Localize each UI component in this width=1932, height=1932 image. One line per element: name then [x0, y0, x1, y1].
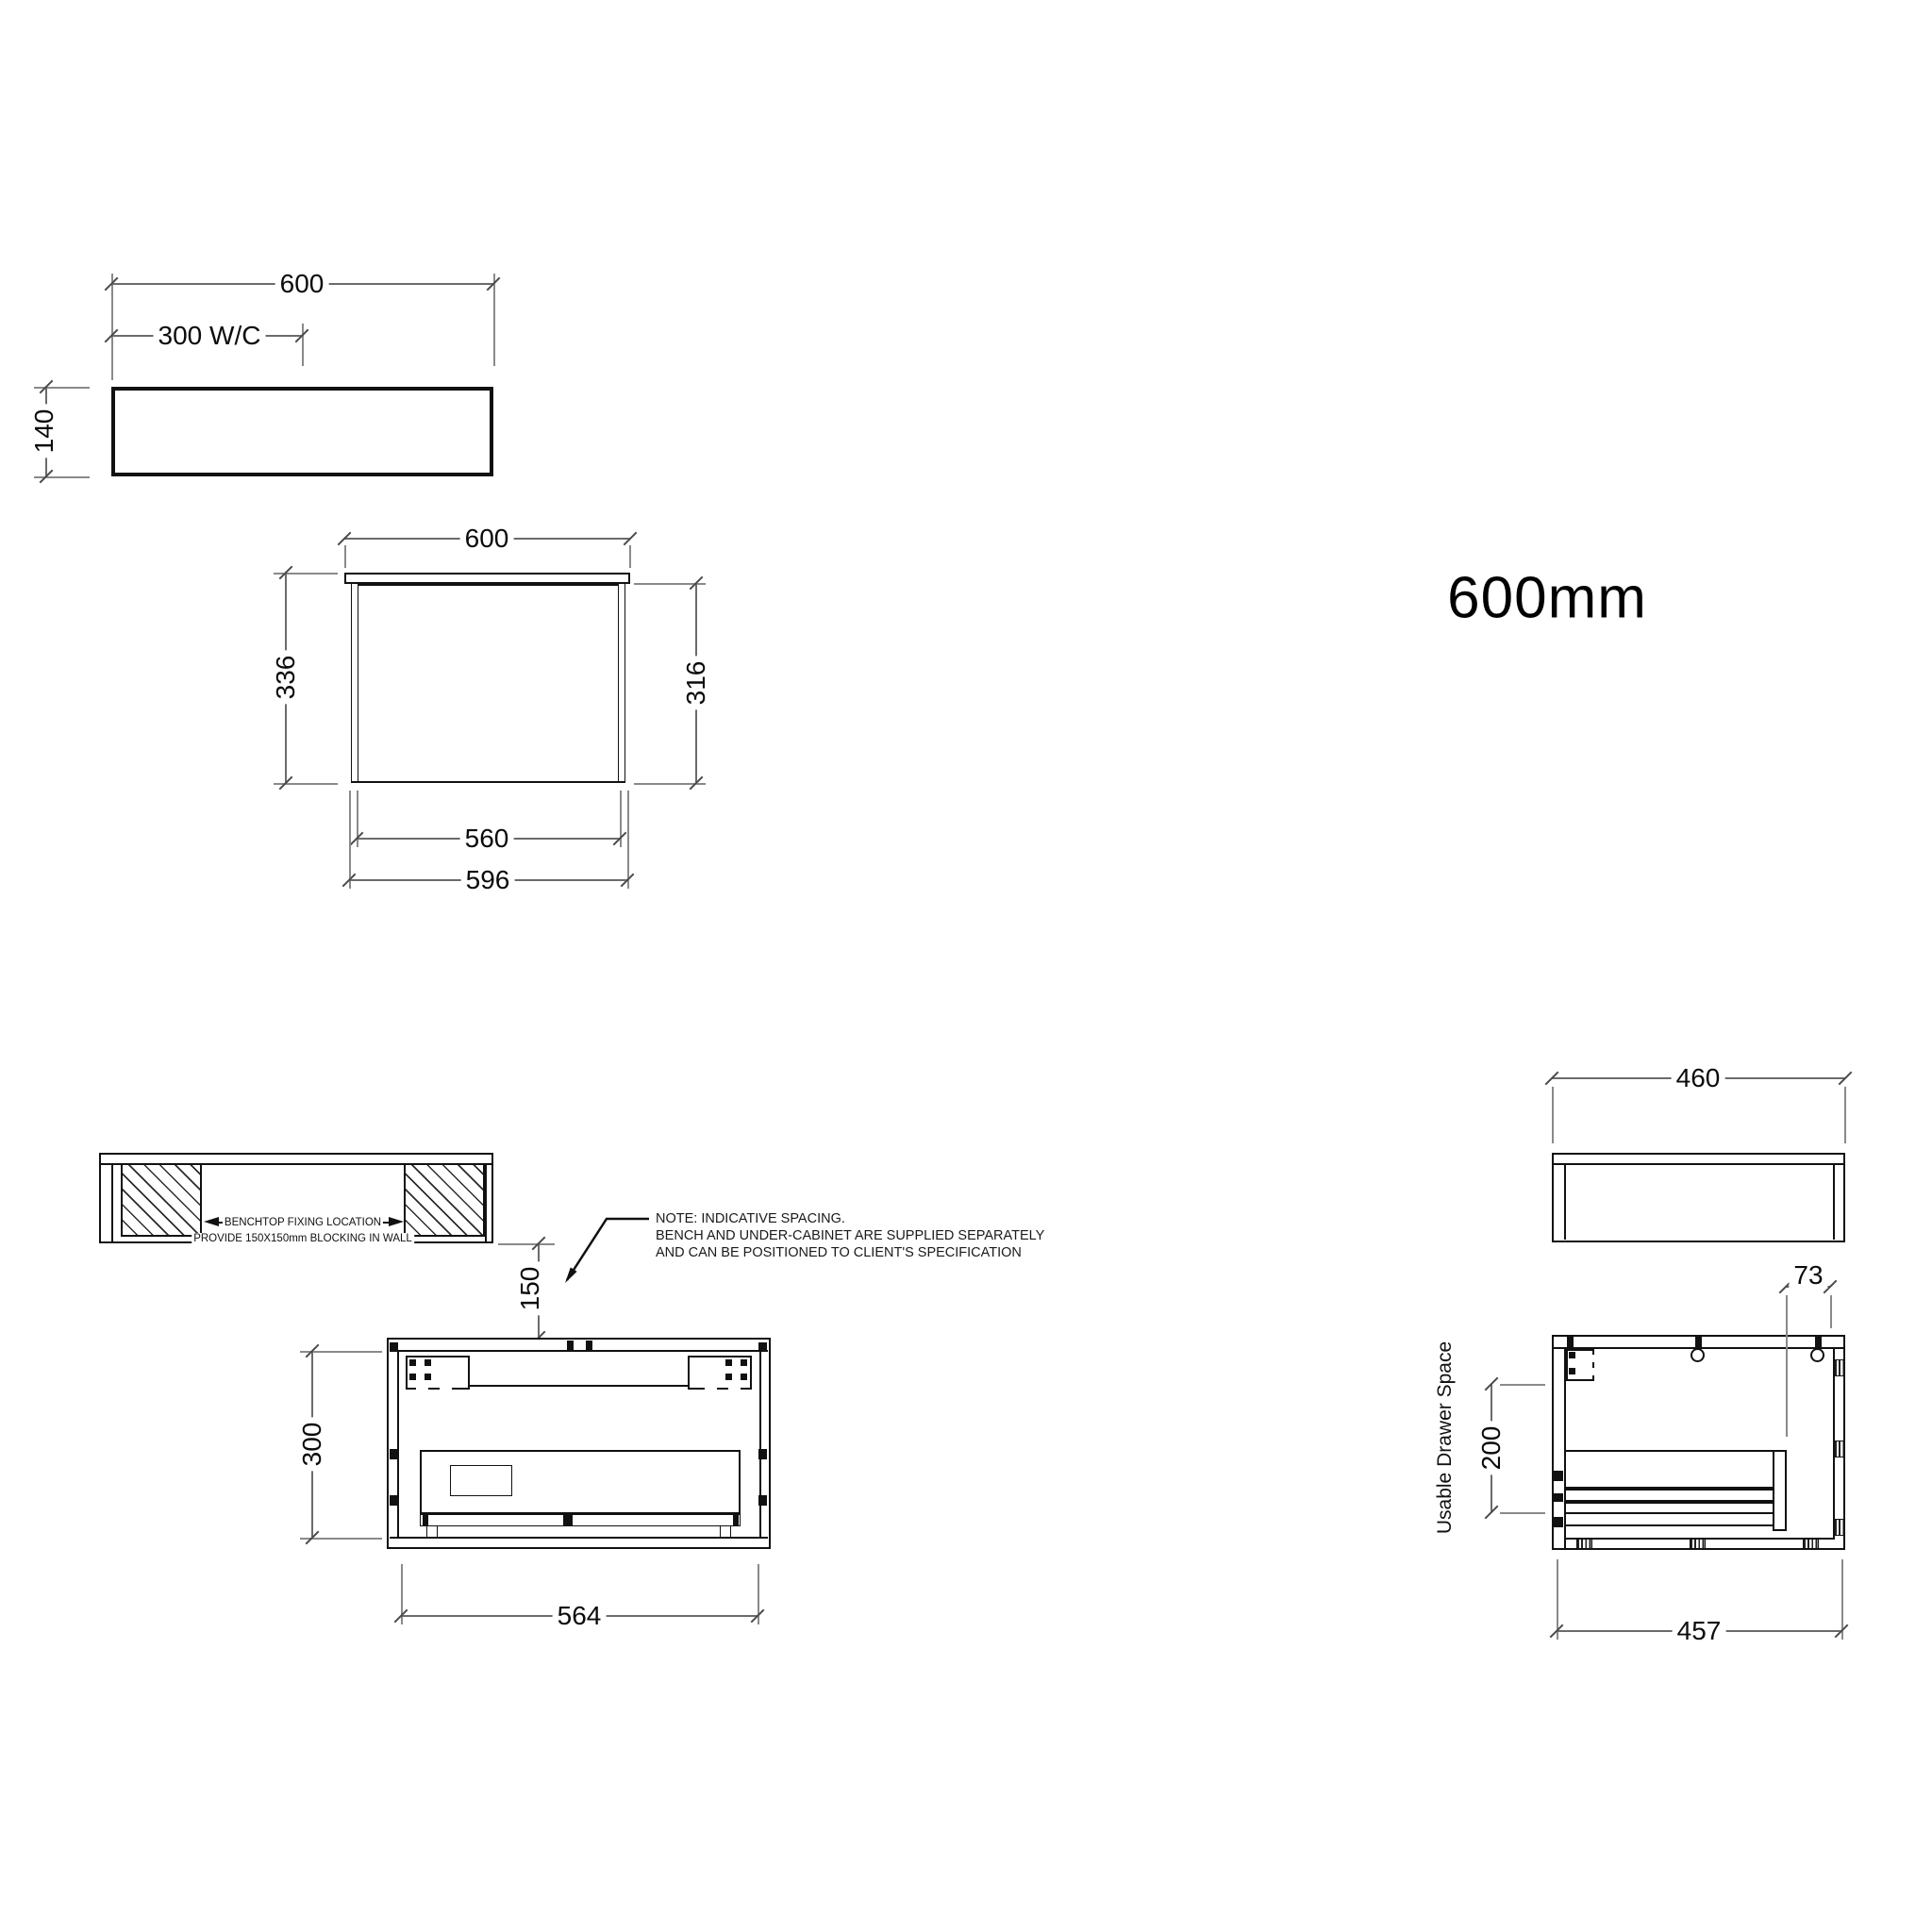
dim-wc-offset: 300 W/C — [154, 323, 266, 349]
blocking-hatch-right — [404, 1163, 485, 1237]
blocking-hatch-left — [121, 1163, 202, 1237]
dim-height-overall: 336 — [273, 651, 299, 705]
bracket-notch — [440, 1381, 452, 1392]
usable-drawer-space-label: Usable Drawer Space — [1434, 1341, 1457, 1534]
rail-clip — [733, 1515, 739, 1525]
bracket-clip — [1569, 1368, 1575, 1374]
extension-line — [1552, 1087, 1554, 1143]
side-fixing-tab — [1567, 1337, 1574, 1347]
extension-line — [1830, 1295, 1832, 1328]
runner-block — [390, 1449, 398, 1459]
dim-spacing-gap: 150 — [517, 1262, 543, 1316]
bracket-clip — [725, 1374, 732, 1380]
drawer-runner-rail — [1564, 1487, 1786, 1491]
bracket-notch — [416, 1381, 428, 1392]
bracket-clip — [409, 1374, 416, 1380]
runner-block — [1553, 1471, 1563, 1481]
drawer-back-cutout — [450, 1465, 512, 1496]
drawer-back-panel-side — [1773, 1450, 1787, 1531]
wall-rail-fixing — [1834, 1519, 1844, 1536]
extension-line — [627, 791, 629, 889]
benchtop-side-outline — [1552, 1153, 1845, 1242]
benchtop-side-edge — [1833, 1164, 1835, 1240]
note-line2: BENCH AND UNDER-CABINET ARE SUPPLIED SEP… — [656, 1227, 1044, 1244]
dim-inner-width: 560 — [460, 825, 514, 852]
drawer-front-rail-plan — [420, 1514, 741, 1526]
plan-fixing-tab — [586, 1341, 592, 1350]
benchtop-side-edge — [1564, 1164, 1566, 1240]
rail-clip — [423, 1515, 428, 1525]
bracket-clip — [1569, 1352, 1575, 1358]
blocking-label-line1: BENCHTOP FIXING LOCATION — [223, 1217, 383, 1228]
arrow-right-icon — [389, 1217, 404, 1226]
rail-foot — [720, 1525, 731, 1538]
plan-rail-line — [470, 1385, 688, 1387]
plan-right-inner-line — [759, 1350, 761, 1538]
dim-outer-width: 596 — [461, 867, 515, 893]
drawer-runner-rail — [1564, 1500, 1786, 1504]
plan-bottom-inner-line — [390, 1537, 768, 1539]
extension-line — [111, 274, 113, 380]
runner-block — [390, 1495, 398, 1506]
rail-clip — [563, 1515, 573, 1525]
note-line3: AND CAN BE POSITIONED TO CLIENT'S SPECIF… — [656, 1244, 1022, 1261]
dim-plan-depth: 300 — [299, 1418, 325, 1472]
runner-block — [1553, 1493, 1563, 1502]
extension-line — [349, 791, 351, 889]
extension-line — [1500, 1384, 1545, 1386]
benchtop-front-outline — [344, 573, 630, 584]
dim-benchtop-depth: 460 — [1672, 1065, 1725, 1091]
base-fixing — [1803, 1539, 1819, 1549]
runner-block — [758, 1342, 767, 1350]
dim-height-cabinet: 316 — [683, 657, 709, 710]
extension-line — [629, 545, 631, 568]
cabinet-top-line — [358, 584, 618, 586]
bracket-clip — [425, 1374, 431, 1380]
rail-foot — [426, 1525, 438, 1538]
cabinet-right-panel — [618, 583, 625, 783]
bracket-notch — [728, 1381, 741, 1392]
bracket-clip — [741, 1374, 747, 1380]
dim-benchtop-width: 600 — [275, 271, 329, 297]
side-fixing-tab — [1695, 1337, 1702, 1347]
cabinet-bottom-line — [351, 781, 625, 783]
runner-block — [758, 1449, 767, 1459]
runner-block — [1553, 1517, 1563, 1527]
note-line1: NOTE: INDICATIVE SPACING. — [656, 1210, 845, 1227]
runner-block — [390, 1342, 398, 1350]
extension-line — [493, 274, 495, 366]
extension-line — [302, 324, 304, 366]
base-fixing — [1576, 1539, 1592, 1549]
benchtop-side-top-band — [1554, 1163, 1843, 1165]
bracket-clip — [725, 1359, 732, 1366]
fixing-hole — [1810, 1348, 1824, 1362]
base-fixing — [1690, 1539, 1706, 1549]
technical-drawing-canvas: 600 300 W/C 140 600 336 316 560 596 600m… — [0, 0, 1932, 1932]
wall-section-inner-line — [485, 1164, 487, 1241]
bracket-clip — [425, 1359, 431, 1366]
dim-plan-width: 564 — [553, 1603, 607, 1629]
bracket-notch — [1588, 1368, 1596, 1375]
dim-elevation-width: 600 — [460, 525, 514, 552]
cabinet-left-panel — [351, 583, 358, 783]
blocking-label-line2: PROVIDE 150X150mm BLOCKING IN WALL — [192, 1233, 414, 1244]
benchtop-plan-outline — [111, 387, 493, 476]
plan-left-inner-line — [397, 1350, 399, 1538]
size-title-label: 600mm — [1447, 565, 1647, 632]
extension-line — [498, 1243, 555, 1245]
plan-top-inner-line — [390, 1350, 768, 1352]
dim-side-depth: 457 — [1673, 1618, 1726, 1644]
extension-line — [344, 545, 346, 568]
dim-back-gap: 73 — [1789, 1262, 1827, 1289]
extension-line — [1844, 1087, 1846, 1143]
bracket-clip — [741, 1359, 747, 1366]
dim-drawer-height: 200 — [1478, 1422, 1505, 1475]
fixing-hole — [1690, 1348, 1705, 1362]
bracket-notch — [705, 1381, 717, 1392]
bracket-notch — [1588, 1355, 1596, 1362]
extension-line — [1786, 1295, 1788, 1437]
dim-benchtop-thickness: 140 — [31, 405, 58, 458]
bracket-clip — [409, 1359, 416, 1366]
runner-block — [758, 1495, 767, 1506]
drawer-base-line — [1564, 1512, 1786, 1514]
wall-rail-fixing — [1834, 1359, 1844, 1376]
wall-rail-fixing — [1834, 1441, 1844, 1457]
plan-fixing-tab — [567, 1341, 574, 1350]
extension-line — [1500, 1512, 1545, 1514]
wall-section-inner-line — [111, 1164, 113, 1241]
side-fixing-tab — [1815, 1337, 1822, 1347]
